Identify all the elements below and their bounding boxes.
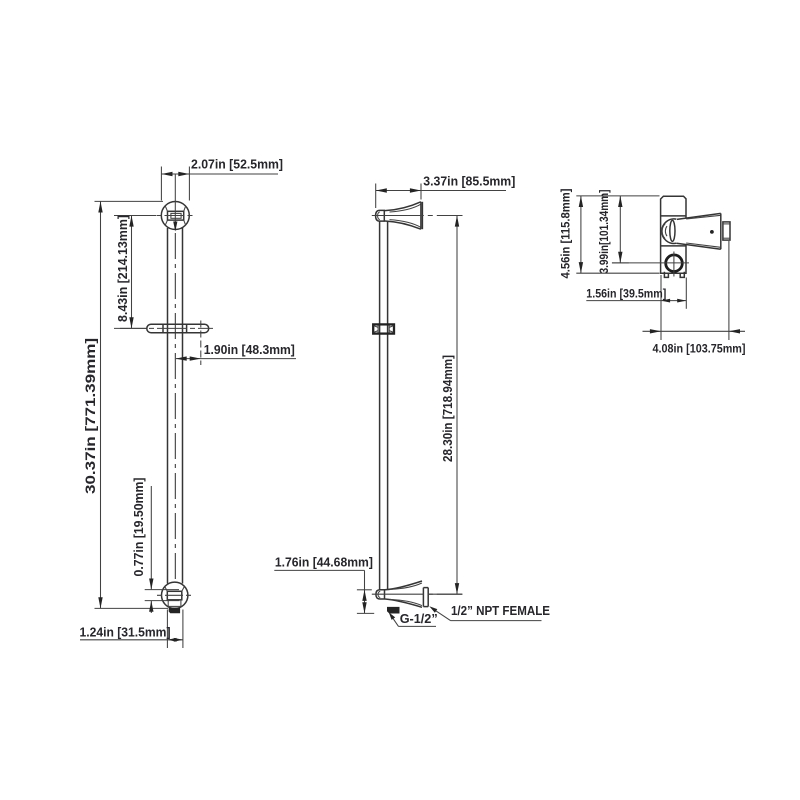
svg-text:4.56in [115.8mm]: 4.56in [115.8mm] bbox=[561, 188, 573, 278]
svg-text:30.37in [771.39mm]: 30.37in [771.39mm] bbox=[82, 338, 98, 494]
svg-text:G-1/2”: G-1/2” bbox=[400, 611, 438, 626]
svg-text:8.43in [214.13mm]: 8.43in [214.13mm] bbox=[115, 215, 130, 322]
svg-text:3.99in[101.34mm]: 3.99in[101.34mm] bbox=[599, 189, 611, 273]
svg-text:28.30in [718.94mm]: 28.30in [718.94mm] bbox=[440, 355, 455, 462]
svg-text:0.77in [19.50mm]: 0.77in [19.50mm] bbox=[131, 478, 146, 577]
svg-text:1.76in [44.68mm]: 1.76in [44.68mm] bbox=[275, 555, 373, 570]
svg-text:1/2” NPT FEMALE: 1/2” NPT FEMALE bbox=[451, 603, 550, 618]
svg-text:1.24in [31.5mm]: 1.24in [31.5mm] bbox=[80, 624, 171, 639]
svg-text:3.37in [85.5mm]: 3.37in [85.5mm] bbox=[423, 173, 515, 188]
svg-text:1.56in [39.5mm]: 1.56in [39.5mm] bbox=[586, 288, 666, 300]
svg-text:2.07in [52.5mm]: 2.07in [52.5mm] bbox=[191, 157, 283, 172]
svg-text:1.90in [48.3mm]: 1.90in [48.3mm] bbox=[204, 342, 295, 357]
svg-text:4.08in [103.75mm]: 4.08in [103.75mm] bbox=[653, 344, 746, 356]
